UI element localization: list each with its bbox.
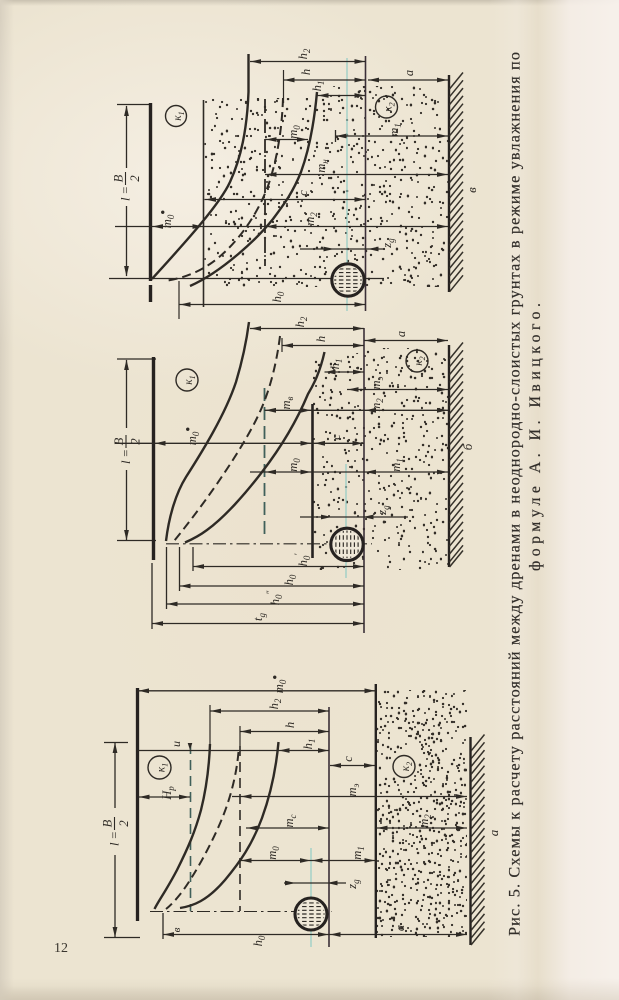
- svg-text:m0●: m0●: [270, 675, 288, 694]
- svg-text:mэ: mэ: [345, 783, 361, 796]
- svg-text:h0: h0: [251, 935, 267, 946]
- svg-text:zg: zg: [345, 879, 361, 890]
- svg-text:формуле А. И. Ивицкого.: формуле А. И. Ивицкого.: [527, 303, 544, 571]
- svg-text:tg: tg: [251, 613, 267, 621]
- svg-text:2: 2: [117, 820, 131, 826]
- svg-text:m0●: m0●: [158, 210, 176, 229]
- svg-text:B: B: [101, 819, 115, 827]
- svg-text:h: h: [314, 336, 328, 342]
- svg-text:б: б: [460, 443, 475, 450]
- svg-text:m0: m0: [286, 125, 302, 139]
- svg-text:h0: h0: [282, 574, 298, 585]
- svg-text:m0: m0: [286, 458, 302, 472]
- svg-text:h0′: h0′: [293, 553, 312, 567]
- svg-text:12: 12: [54, 941, 68, 956]
- svg-text:к1: к1: [156, 763, 170, 772]
- svg-text:l =: l =: [119, 449, 133, 464]
- svg-text:m0: m0: [265, 846, 281, 860]
- svg-text:в: в: [171, 927, 183, 932]
- svg-text:zg: zg: [380, 238, 396, 249]
- svg-text:l =: l =: [108, 831, 122, 846]
- svg-text:h0: h0: [270, 291, 286, 302]
- svg-text:h1: h1: [328, 359, 344, 370]
- svg-text:в: в: [464, 187, 479, 193]
- svg-text:c: c: [329, 434, 343, 440]
- svg-text:к2: к2: [400, 762, 414, 771]
- svg-text:m0●: m0●: [183, 427, 201, 446]
- svg-text:h2: h2: [296, 48, 312, 59]
- svg-text:Рис. 5. Схемы к расчету рассто: Рис. 5. Схемы к расчету расстояний между…: [506, 52, 524, 936]
- svg-text:a: a: [393, 925, 407, 931]
- svg-text:к1: к1: [172, 111, 186, 120]
- svg-text:B: B: [112, 437, 126, 445]
- svg-text:mc: mc: [282, 814, 298, 827]
- svg-text:2: 2: [128, 175, 142, 181]
- svg-text:m1: m1: [387, 123, 403, 137]
- svg-text:m1: m1: [350, 846, 366, 860]
- svg-text:h1: h1: [310, 81, 326, 92]
- svg-text:mн: mн: [314, 159, 330, 173]
- svg-text:к2: к2: [383, 102, 397, 111]
- svg-text:c: c: [296, 190, 310, 196]
- svg-text:m2: m2: [369, 398, 385, 412]
- svg-text:u: u: [169, 741, 183, 747]
- svg-text:a: a: [394, 331, 408, 337]
- svg-text:h: h: [283, 722, 297, 728]
- svg-text:к1: к1: [183, 375, 197, 384]
- svg-text:B: B: [112, 174, 126, 182]
- svg-text:l =: l =: [119, 186, 133, 201]
- svg-text:h: h: [299, 69, 313, 75]
- svg-text:mэ: mэ: [369, 376, 385, 389]
- svg-text:h1: h1: [301, 739, 317, 750]
- svg-text:mв: mв: [279, 396, 295, 409]
- svg-text:m1: m1: [389, 458, 405, 472]
- svg-text:h0″: h0″: [265, 591, 284, 606]
- svg-text:h2: h2: [293, 316, 309, 327]
- svg-text:c: c: [341, 756, 355, 762]
- svg-text:zg: zg: [375, 505, 391, 516]
- svg-text:Hp: Hp: [160, 786, 176, 801]
- svg-text:a: a: [402, 70, 416, 76]
- svg-text:h2: h2: [267, 698, 283, 709]
- svg-text:а: а: [486, 829, 501, 836]
